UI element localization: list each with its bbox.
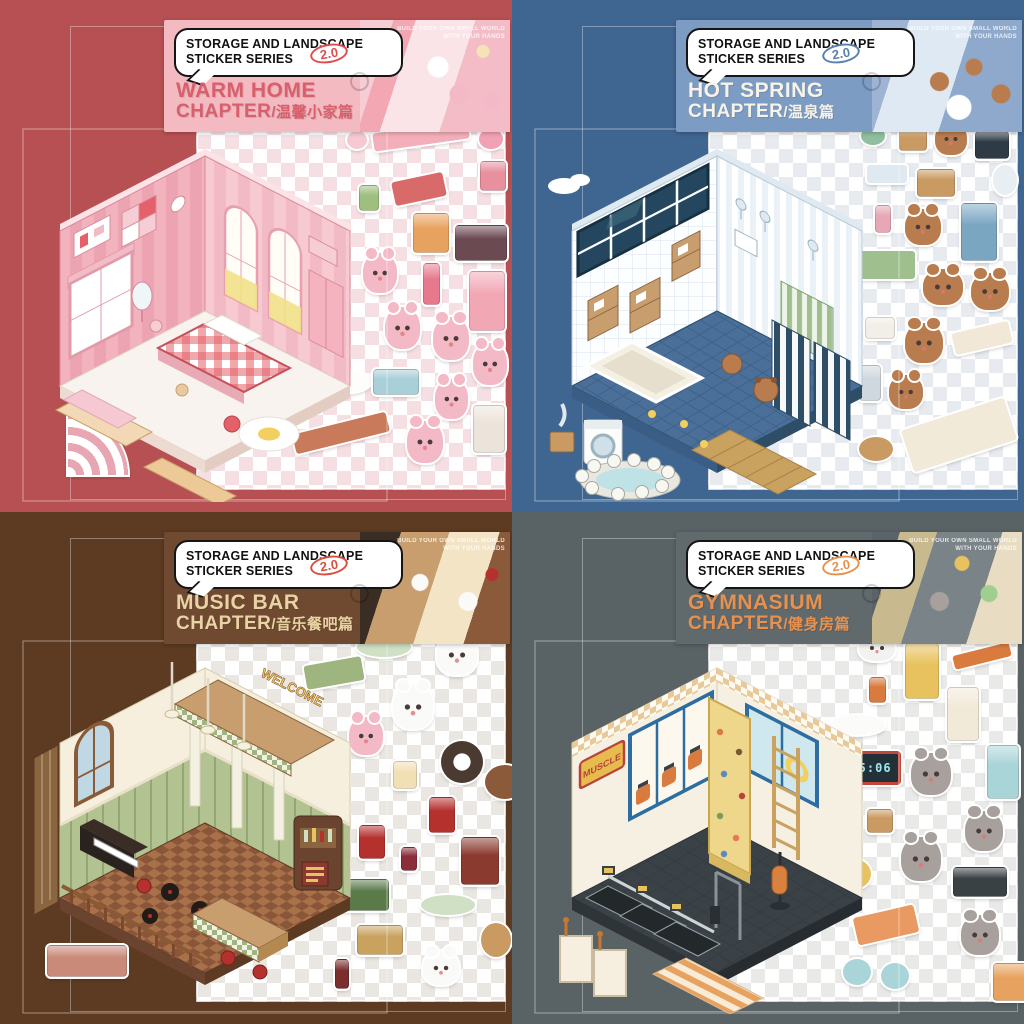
cream-locker-sticker [947, 687, 979, 741]
shoe-locker-sticker [993, 963, 1024, 1001]
chapter-title-cn: /温馨小家篇 [271, 104, 353, 121]
header-card: BUILD YOUR OWN SMALL WORLDWITH YOUR HAND… [676, 532, 1022, 644]
series-label-line2: STICKER SERIES [186, 52, 293, 66]
gray-cat-wave-sticker [901, 837, 941, 881]
black-tablet-sticker [975, 131, 1009, 159]
punch-hole [862, 584, 881, 603]
tagline: BUILD YOUR OWN SMALL WORLDWITH YOUR HAND… [909, 26, 1017, 42]
series-bubble: STORAGE AND LANDSCAPE STICKER SERIES [174, 28, 403, 77]
fireplace-sticker [473, 405, 505, 453]
header-card: BUILD YOUR OWN SMALL WORLDWITH YOUR HAND… [676, 20, 1022, 132]
bunny-broom-sticker [473, 343, 507, 385]
chapter-title-en: HOT SPRING [688, 80, 835, 102]
chapter-word: CHAPTER [688, 613, 783, 634]
back-bar-shelf [294, 816, 342, 890]
chapter-word: CHAPTER [176, 613, 271, 634]
teddy [176, 384, 188, 396]
bunny-bow-sticker [433, 317, 469, 360]
tagline: BUILD YOUR OWN SMALL WORLDWITH YOUR HAND… [397, 26, 505, 42]
warm-home-room-illustration [22, 128, 388, 502]
drawer-unit-sticker [413, 213, 449, 253]
soap-shelf-sticker [917, 169, 955, 197]
cream-bench-sticker [951, 321, 1012, 355]
heart-cushion-sticker [479, 129, 503, 149]
red-desk-sticker [391, 172, 447, 206]
series-bubble: STORAGE AND LANDSCAPE STICKER SERIES [174, 540, 403, 589]
wine-glass-sticker [401, 847, 417, 871]
chapter-word: CHAPTER [688, 101, 783, 122]
menu-board-sticker [461, 837, 499, 885]
panel-hot-spring: BUILD YOUR OWN SMALL WORLDWITH YOUR HAND… [512, 0, 1024, 512]
hot-spring-room-illustration [534, 128, 900, 502]
yellow-locker-sticker [905, 643, 939, 699]
tatami-mat-sticker [901, 397, 1017, 472]
wagon-wheel-sticker [441, 741, 483, 783]
wooden-bucket-sticker [899, 129, 927, 151]
series-label-line2: STICKER SERIES [698, 52, 805, 66]
tv-console-sticker [455, 225, 507, 261]
wooden-barrel-sticker [481, 923, 511, 957]
checker-platter-sticker [421, 895, 475, 915]
dumbbell-rack-sticker [953, 867, 1007, 897]
cloud [548, 174, 590, 194]
chapter-word: CHAPTER [176, 101, 271, 122]
bunny-cake-sticker [407, 421, 443, 463]
floor-lamp-sticker [423, 263, 440, 305]
gray-cat-sitting-sticker [911, 753, 951, 795]
panel-music-bar: WELCOME [0, 512, 512, 1024]
steam-bucket [550, 404, 574, 452]
blue-locker-sticker [987, 745, 1019, 799]
bar-stool-sticker [429, 797, 455, 833]
chapter-title-en: WARM HOME [176, 80, 354, 102]
gymnasium-room-illustration: MUSCLE [534, 640, 900, 1014]
gray-cat-ball-sticker [965, 811, 1003, 851]
wall-art-sticker [480, 161, 506, 191]
panel-warm-home: BUILD YOUR OWN SMALL WORLDWITH YOUR HAND… [0, 0, 512, 512]
beer-mug-sticker [393, 761, 417, 789]
tagline: BUILD YOUR OWN SMALL WORLDWITH YOUR HAND… [909, 538, 1017, 554]
chapter-title-en: GYMNASIUM [688, 592, 850, 614]
punch-hole [350, 72, 369, 91]
series-label-line2: STICKER SERIES [186, 564, 293, 578]
chapter-title: HOT SPRING CHAPTER/温泉篇 [688, 80, 835, 122]
bunny-sleepy-sticker [435, 379, 468, 419]
climbing-wall [709, 698, 750, 884]
music-bar-room-illustration: WELCOME [22, 640, 388, 1014]
punch-hole [862, 72, 881, 91]
red-stool [224, 416, 240, 432]
flower-rug-center [258, 428, 280, 441]
punch-hole [350, 584, 369, 603]
series-bubble: STORAGE AND LANDSCAPE STICKER SERIES [686, 28, 915, 77]
panda-cheers-sticker [423, 951, 459, 985]
gray-cat-run-sticker [961, 915, 999, 955]
series-label-line2: STICKER SERIES [698, 564, 805, 578]
pink-fridge-sticker [469, 271, 505, 331]
header-card: BUILD YOUR OWN SMALL WORLDWITH YOUR HAND… [164, 532, 510, 644]
round-table-sticker [485, 765, 512, 799]
blue-cabinet-sticker [961, 203, 997, 261]
chapter-title-cn: /音乐餐吧篇 [271, 616, 353, 633]
chapter-title-cn: /温泉篇 [783, 104, 834, 121]
capybara-shower-sticker [905, 323, 943, 363]
bunny-waving-sticker [385, 307, 420, 349]
panda-waiter-sticker [393, 685, 433, 729]
chapter-title: GYMNASIUM CHAPTER/健身房篇 [688, 592, 850, 634]
chapter-title-en: MUSIC BAR [176, 592, 354, 614]
tagline: BUILD YOUR OWN SMALL WORLDWITH YOUR HAND… [397, 538, 505, 554]
glass-door [34, 745, 58, 915]
header-card: BUILD YOUR OWN SMALL WORLDWITH YOUR HAND… [164, 20, 510, 132]
capybara-duck-sticker [971, 273, 1009, 310]
stone-pool [576, 454, 681, 501]
orange-shelf-sticker [952, 642, 1012, 670]
capybara-soaking-sticker [923, 269, 963, 305]
chapter-title-cn: /健身房篇 [783, 616, 850, 633]
sticker-series-collage: BUILD YOUR OWN SMALL WORLDWITH YOUR HAND… [0, 0, 1024, 1024]
chapter-title: MUSIC BAR CHAPTER/音乐餐吧篇 [176, 592, 354, 634]
chapter-title: WARM HOME CHAPTER/温馨小家篇 [176, 80, 354, 122]
series-bubble: STORAGE AND LANDSCAPE STICKER SERIES [686, 540, 915, 589]
capybara-washing-sticker [905, 209, 941, 245]
panel-gymnasium: 35:06 [512, 512, 1024, 1024]
hand-mirror-sticker [993, 165, 1017, 195]
